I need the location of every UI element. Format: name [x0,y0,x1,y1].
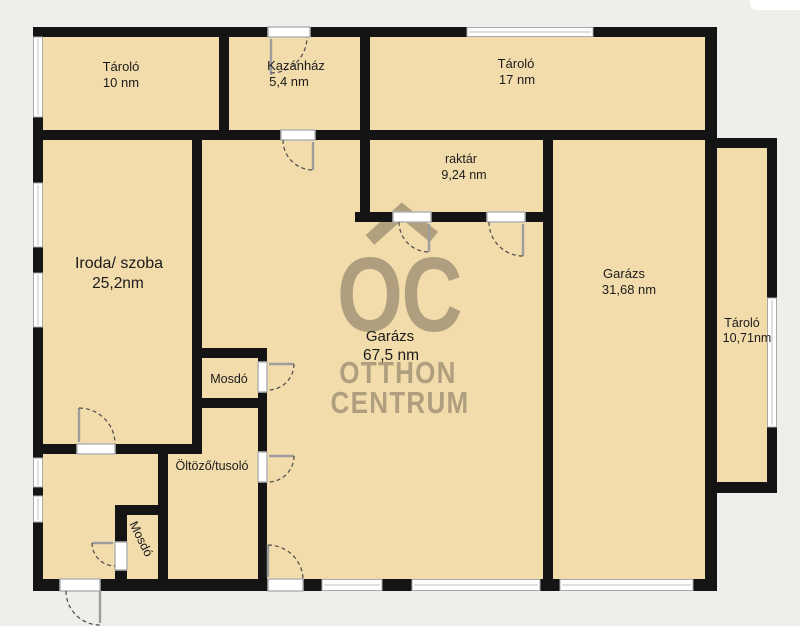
door-opening-mosdo1 [258,362,267,392]
floor-plan-drawing: OC OTTHON CENTRUM [0,0,800,626]
door-opening-raktar-2 [487,212,525,222]
door-opening-exterior [60,579,100,591]
room-label-garazs-kozep-area: 67,5 nm [363,347,419,364]
door-opening-entry-kazanhaz [268,27,310,37]
room-label-tarolo10-area: 10 nm [103,75,139,90]
watermark: OC OTTHON CENTRUM [331,211,470,421]
room-label-kazanhaz-name: Kazánház [267,58,325,73]
wall-exterior-right [705,27,717,591]
room-label-raktar-name: raktár [445,152,477,166]
wall-kazanhaz-left [219,37,229,130]
room-label-raktar-area: 9,24 nm [441,168,486,182]
room-label-garazs-kozep-name: Garázs [366,328,414,345]
room-label-tarolo-jobb-area: 10,71nm [723,331,772,345]
wall-mosdo1-bottom [197,398,267,408]
room-label-garazs-jobb-name: Garázs [603,266,645,281]
floor-plan-page: OC OTTHON CENTRUM [0,0,800,626]
wall-horizontal-upper [43,130,705,140]
door-opening-kazanhaz-garage [281,130,315,140]
corner-widget [749,0,800,11]
door-opening-oltozo [258,452,267,482]
wall-annex-bottom [712,482,777,493]
wall-kazanhaz-raktar-right [360,37,370,222]
wall-exterior-top [33,27,712,37]
room-label-tarolo-jobb-name: Tároló [724,316,759,330]
watermark-line2: CENTRUM [331,386,470,421]
door-opening-raktar-1 [393,212,431,222]
room-label-iroda-name: Iroda/ szoba [75,255,163,272]
room-label-garazs-jobb-area: 31,68 nm [602,282,656,297]
wall-annex-top [705,138,777,148]
wall-garage-divider [543,140,553,579]
wall-mosdo1-top [197,348,267,358]
room-label-kazanhaz-area: 5,4 nm [269,74,309,89]
room-label-iroda-area: 25,2nm [92,275,144,292]
door-opening-iroda [77,444,115,454]
room-label-oltozo: Öltöző/tusoló [176,459,249,473]
door-opening-garage-person [268,579,303,591]
door-opening-mosdo2 [115,542,127,570]
room-label-tarolo17-name: Tároló [498,56,535,71]
room-label-mosdo1: Mosdó [210,372,248,386]
wall-iroda-bottom [43,444,202,454]
room-label-tarolo17-area: 17 nm [499,72,535,87]
room-label-tarolo10-name: Tároló [103,59,140,74]
